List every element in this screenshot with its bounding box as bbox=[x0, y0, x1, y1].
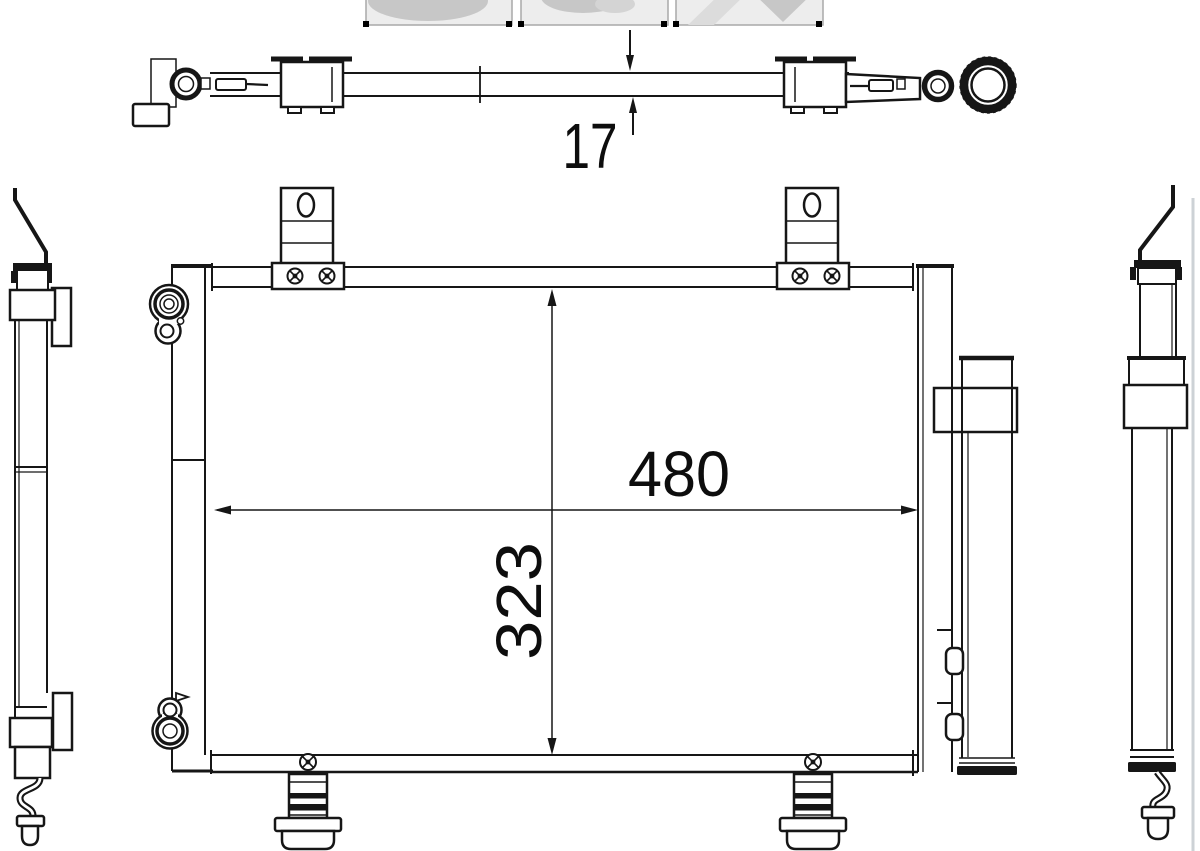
top-view-right-arm bbox=[846, 74, 920, 102]
screw-icon bbox=[288, 269, 303, 284]
top-view-bracket-left bbox=[271, 59, 352, 113]
dimension-width-label: 480 bbox=[628, 438, 730, 510]
bent-bracket bbox=[1140, 185, 1173, 262]
port-tab bbox=[946, 648, 963, 674]
screw-icon bbox=[825, 269, 840, 284]
top-view-pipe-rings bbox=[925, 57, 1017, 113]
lower-collar bbox=[10, 718, 52, 747]
left-side-view bbox=[10, 188, 72, 845]
arrow-up-icon bbox=[629, 97, 637, 113]
dimension-height-label: 323 bbox=[483, 542, 555, 660]
gallery-thumbnail-2[interactable] bbox=[518, 0, 668, 27]
gallery-thumbnails bbox=[363, 0, 823, 27]
fitting-bottom-left bbox=[153, 693, 189, 749]
selection-handle[interactable] bbox=[363, 21, 369, 27]
selection-handle[interactable] bbox=[506, 21, 512, 27]
dimension-depth: 17 bbox=[563, 30, 638, 182]
dimension-width: 480 bbox=[214, 438, 918, 515]
dimension-height: 323 bbox=[483, 289, 557, 755]
selection-handle[interactable] bbox=[661, 21, 667, 27]
receiver-drier bbox=[934, 357, 1017, 775]
bent-bracket bbox=[15, 188, 46, 263]
top-cap bbox=[13, 263, 52, 271]
drier-bottom-cap bbox=[957, 766, 1017, 775]
mounting-bracket-right bbox=[777, 188, 849, 289]
arrow-left-icon bbox=[214, 506, 231, 515]
top-view: 17 bbox=[133, 30, 1016, 182]
side-bracket-tab bbox=[53, 693, 72, 750]
foot-tip bbox=[1148, 818, 1168, 839]
top-view-bracket-right bbox=[775, 59, 856, 113]
top-view-left-pad bbox=[133, 104, 169, 126]
port-tab bbox=[946, 714, 963, 740]
bracket-slot-hole bbox=[804, 194, 820, 217]
drier-bracket bbox=[934, 388, 1017, 432]
foot-tip bbox=[22, 826, 38, 845]
gallery-thumbnail-3[interactable] bbox=[673, 0, 823, 27]
foot-right bbox=[780, 754, 846, 849]
selection-handle[interactable] bbox=[816, 21, 822, 27]
drier-bottom-cap-side bbox=[1128, 762, 1176, 772]
drier-bracket-side bbox=[1124, 385, 1187, 428]
bracket-slot-hole bbox=[298, 194, 314, 217]
foot-left bbox=[275, 754, 341, 849]
upper-collar bbox=[10, 290, 55, 320]
arrow-down-icon bbox=[626, 55, 634, 71]
arrow-right-icon bbox=[901, 506, 918, 515]
drier-neck-side bbox=[1129, 357, 1184, 385]
right-side-view bbox=[1124, 185, 1187, 839]
selection-handle[interactable] bbox=[673, 21, 679, 27]
top-cap bbox=[1134, 260, 1181, 268]
front-view: 480 323 bbox=[150, 188, 1017, 849]
screw-icon bbox=[793, 269, 808, 284]
screw-icon bbox=[300, 754, 316, 770]
screw-icon bbox=[320, 269, 335, 284]
gallery-thumbnail-1[interactable] bbox=[363, 0, 512, 27]
core-frame bbox=[171, 263, 954, 776]
mounting-bracket-left bbox=[272, 188, 344, 289]
arrow-down-icon bbox=[548, 738, 557, 755]
fitting-top-left bbox=[150, 285, 188, 344]
right-channel-ports bbox=[937, 630, 963, 740]
screw-icon bbox=[805, 754, 821, 770]
selection-handle[interactable] bbox=[518, 21, 524, 27]
arrow-up-icon bbox=[548, 289, 557, 306]
top-view-left-fitting bbox=[133, 59, 210, 126]
dimension-depth-label: 17 bbox=[563, 110, 618, 182]
condenser-technical-drawing-page: 17 bbox=[0, 0, 1200, 851]
